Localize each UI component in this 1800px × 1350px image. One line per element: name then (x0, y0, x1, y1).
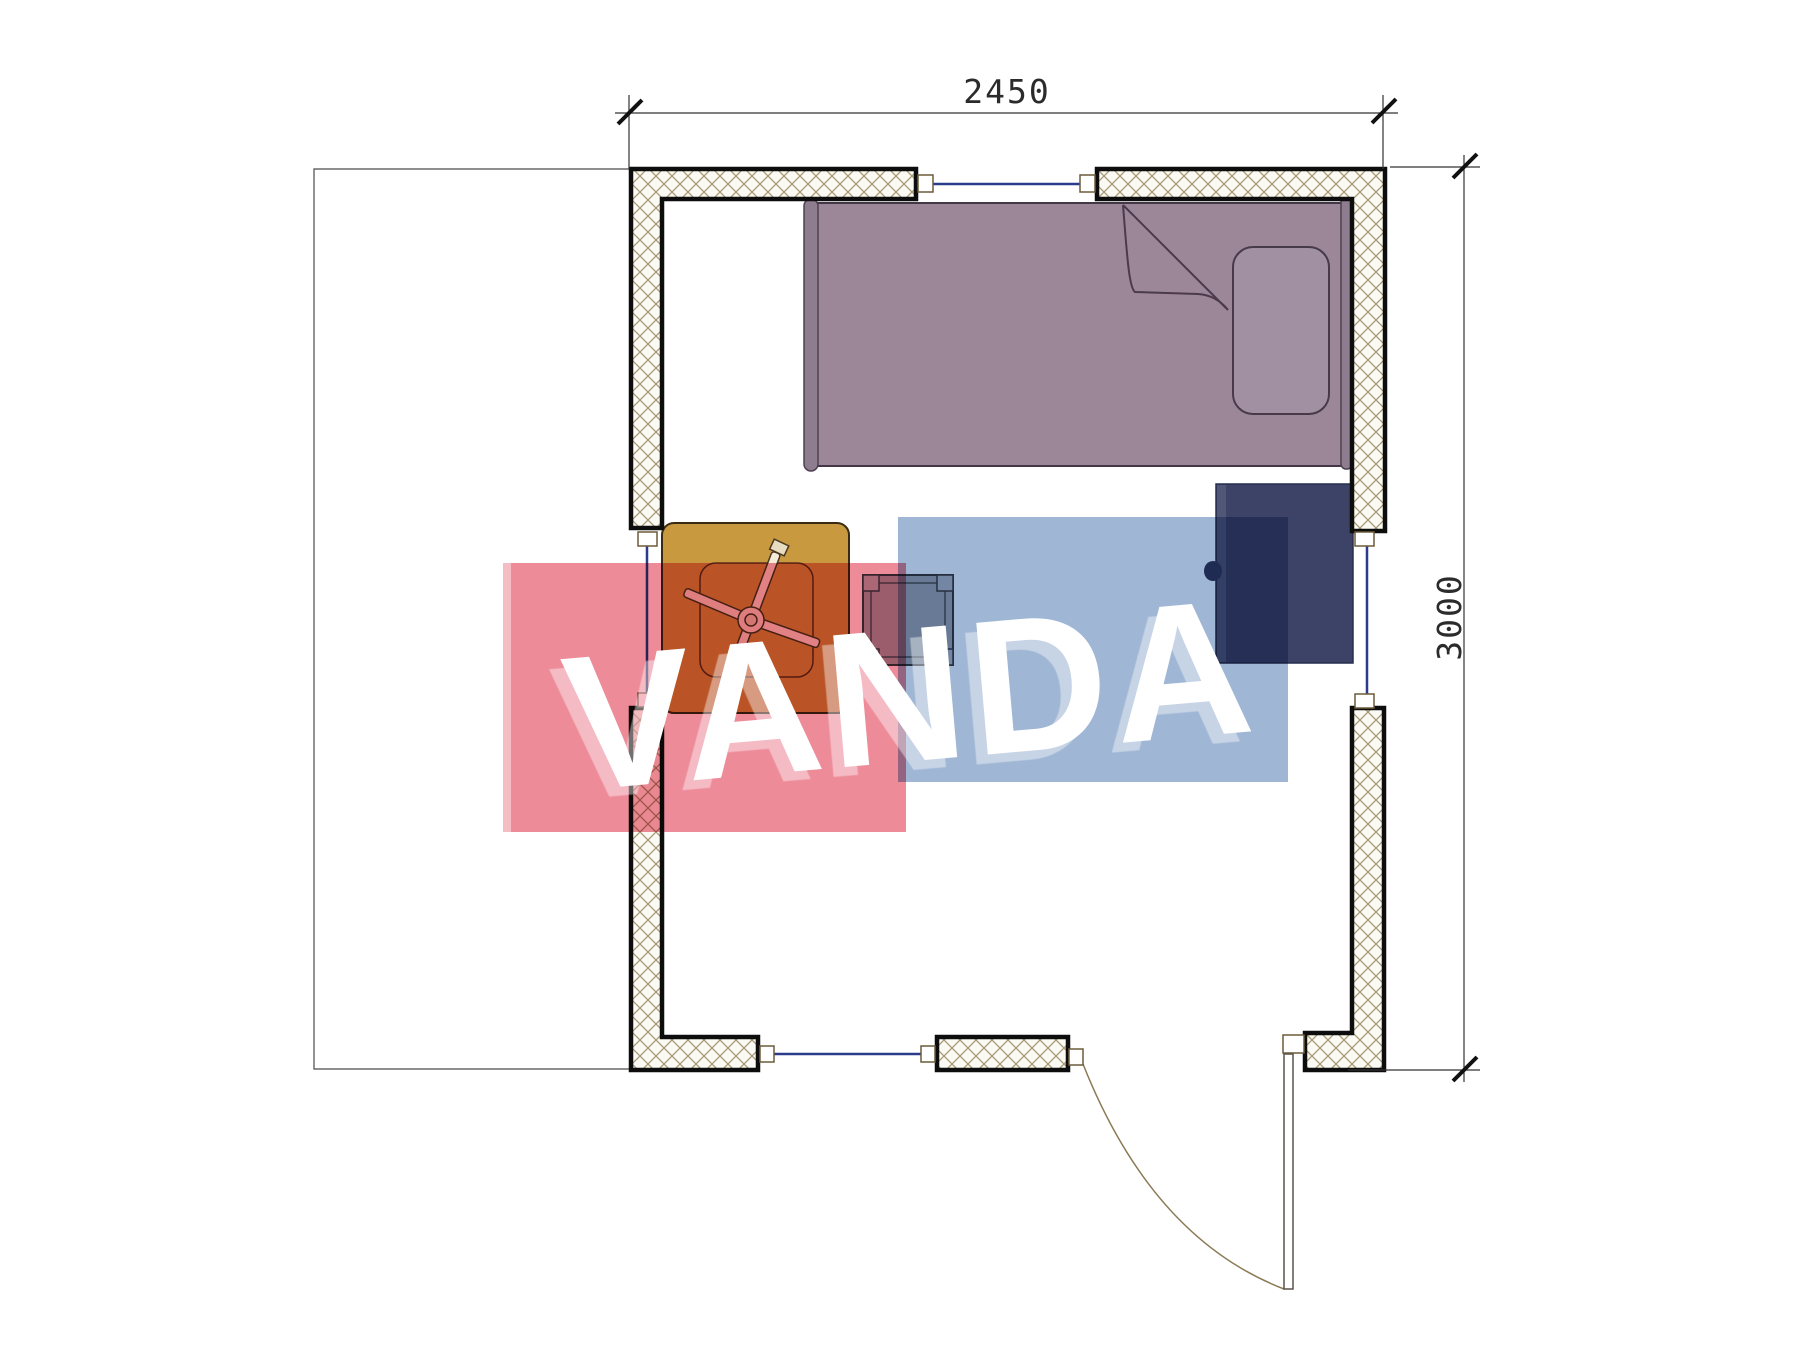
single-bed (804, 197, 1352, 471)
dim-tick (1453, 154, 1477, 178)
window-jamb (921, 1046, 935, 1062)
window-jamb (1355, 694, 1374, 708)
door-jamb (1283, 1035, 1304, 1053)
door-jamb (1069, 1049, 1083, 1065)
door-leaf (1284, 1054, 1293, 1289)
window-jamb (760, 1046, 774, 1062)
window-jamb (1080, 175, 1095, 192)
floor-plan-page: 2450 3000 VANDA (0, 0, 1800, 1350)
dimension-width: 2450 (615, 72, 1398, 169)
window-jamb (918, 175, 933, 192)
wall-bottom-middle (937, 1037, 1068, 1070)
door-swing-arc (1083, 1064, 1284, 1289)
dim-tick (618, 100, 642, 124)
wall-bottom-right (1305, 708, 1384, 1070)
bed-headboard (804, 199, 818, 471)
bed-pillow (1233, 247, 1329, 414)
window-jamb (1355, 532, 1374, 546)
window-jamb (638, 532, 657, 546)
dim-tick (1453, 1057, 1477, 1081)
entrance-door (1083, 1054, 1293, 1289)
dimension-height-label: 3000 (1430, 573, 1469, 660)
dim-tick (1372, 99, 1396, 123)
dimension-width-label: 2450 (963, 72, 1050, 111)
